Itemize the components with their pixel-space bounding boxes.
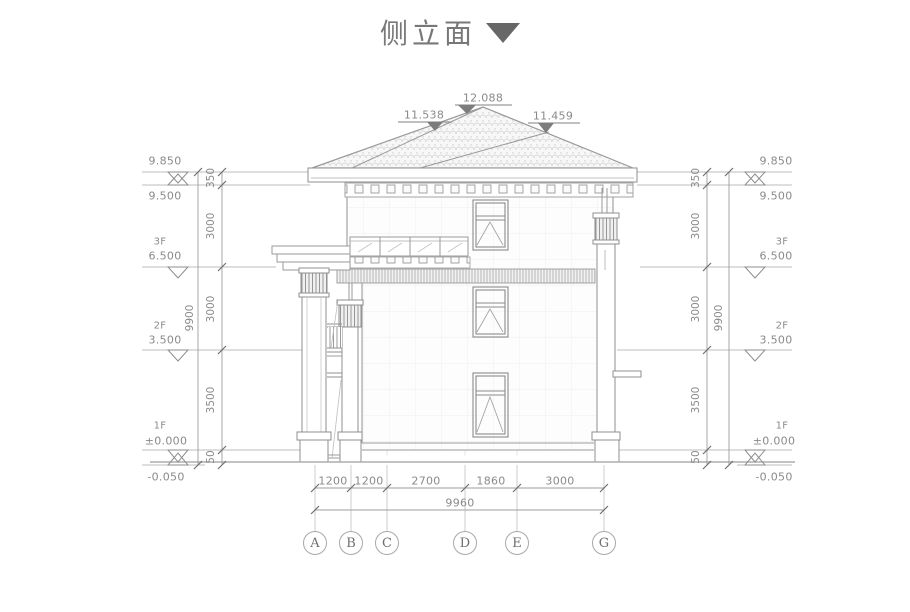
- dim-right-50: 50: [690, 450, 702, 463]
- dim-left-350: 350: [205, 168, 217, 188]
- level-right-m0050: -0.050: [755, 471, 792, 484]
- roof-elev-left: 11.538: [404, 109, 444, 122]
- level-right-9850: 9.850: [760, 155, 793, 168]
- level-markers-right: [745, 172, 765, 465]
- level-left-3500: 3.500: [149, 334, 182, 347]
- porch-column-a: [297, 268, 331, 462]
- level-right-6500: 6.500: [760, 250, 793, 263]
- level-right-9500: 9.500: [760, 190, 793, 203]
- grid-bubble-d: D: [453, 531, 477, 555]
- dim-bottom-2700: 2700: [411, 475, 440, 488]
- dim-bottom-1860: 1860: [476, 475, 505, 488]
- floor-left-2f: 2F: [154, 321, 167, 332]
- level-right-0000: ±0.000: [753, 435, 796, 448]
- grid-bubble-c: C: [375, 531, 399, 555]
- wall-pipe: [613, 371, 641, 377]
- level-left-m0050: -0.050: [147, 471, 184, 484]
- dim-bottom-3000: 3000: [545, 475, 574, 488]
- elevation-drawing-page: 侧立面 11.538 12.088 11.459 9.850 9.500 3F …: [0, 0, 910, 612]
- roof: [308, 107, 637, 197]
- dim-right-350: 350: [690, 168, 702, 188]
- floor-right-3f: 3F: [776, 237, 789, 248]
- floor-left-1f: 1F: [154, 421, 167, 432]
- dim-left-50: 50: [205, 450, 217, 463]
- dim-bottom-total: 9960: [445, 497, 474, 510]
- grid-bubble-e: E: [505, 531, 529, 555]
- dim-left-total: 9900: [184, 305, 196, 332]
- dim-bottom-1200a: 1200: [318, 475, 347, 488]
- grid-bubble-b: B: [339, 531, 363, 555]
- dim-right-3500: 3500: [690, 387, 702, 414]
- level-left-9500: 9.500: [149, 190, 182, 203]
- title-triangle-icon[interactable]: [486, 23, 520, 43]
- page-title: 侧立面: [380, 12, 476, 52]
- floor-left-3f: 3F: [154, 237, 167, 248]
- grid-bubble-a: A: [303, 531, 327, 555]
- level-left-0000: ±0.000: [145, 435, 188, 448]
- dim-bottom-1200b: 1200: [354, 475, 383, 488]
- elevation-drawing: [0, 0, 910, 612]
- dim-left-3000b: 3000: [205, 296, 217, 323]
- grid-bubble-g: G: [592, 531, 616, 555]
- roof-elev-peak: 12.088: [463, 92, 503, 105]
- roof-elev-right: 11.459: [533, 110, 573, 123]
- dim-right-total: 9900: [713, 305, 725, 332]
- level-left-6500: 6.500: [149, 250, 182, 263]
- level-left-9850: 9.850: [149, 155, 182, 168]
- dim-left-3500: 3500: [205, 387, 217, 414]
- dim-right-3000b: 3000: [690, 296, 702, 323]
- dim-right-3000a: 3000: [690, 213, 702, 240]
- floor-right-1f: 1F: [776, 421, 789, 432]
- dim-left-3000a: 3000: [205, 213, 217, 240]
- floor-right-2f: 2F: [776, 321, 789, 332]
- level-right-3500: 3.500: [760, 334, 793, 347]
